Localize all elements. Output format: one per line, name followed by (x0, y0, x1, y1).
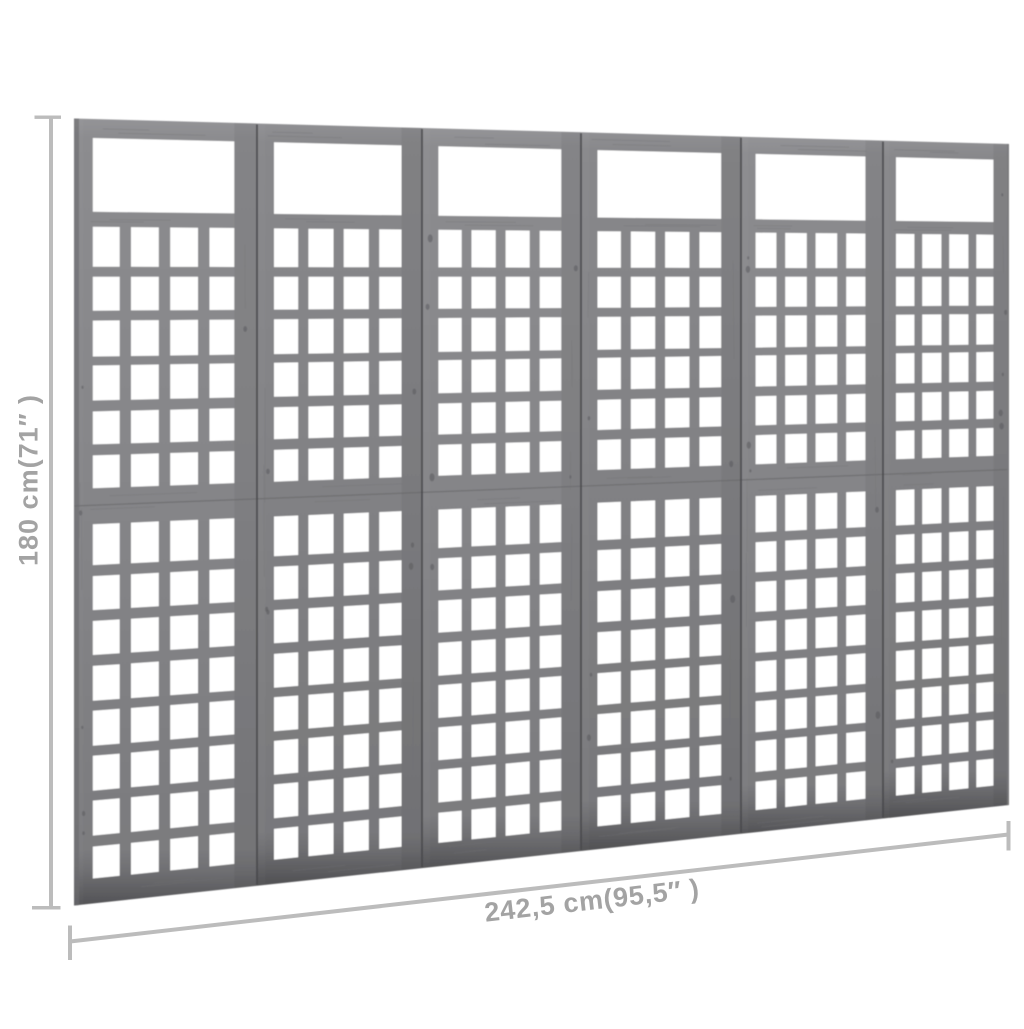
svg-text:180 cm(71″ ): 180 cm(71″ ) (14, 394, 44, 566)
